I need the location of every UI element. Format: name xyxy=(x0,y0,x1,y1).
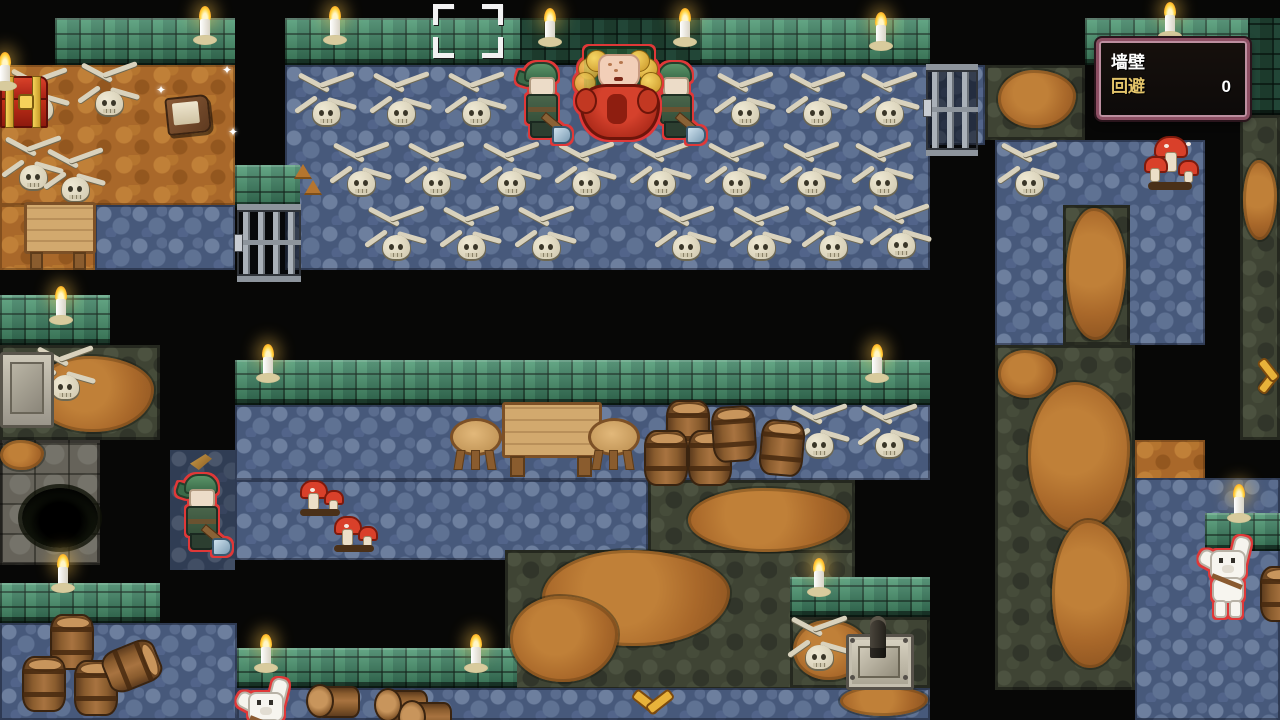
stool xyxy=(448,416,502,472)
gate-portcullis[interactable] xyxy=(237,204,301,282)
barrel-lying xyxy=(398,700,452,720)
skeleton-remains xyxy=(786,618,852,672)
floor-region-cobble[interactable] xyxy=(95,205,235,270)
candle xyxy=(48,286,74,330)
down-arrow-indicator xyxy=(632,690,674,716)
candle xyxy=(868,12,894,56)
wall-tile-region xyxy=(235,360,930,405)
skeleton-remains xyxy=(856,74,922,128)
candle xyxy=(463,634,489,678)
floor-region-dirt[interactable] xyxy=(1135,440,1205,480)
floor-region-cobble[interactable] xyxy=(235,480,648,560)
tooltip-value-evade: 0 xyxy=(1222,75,1235,99)
skeleton-remains xyxy=(850,144,916,198)
candle xyxy=(322,6,348,50)
right-arrow-indicator xyxy=(1253,365,1280,391)
sparkle-effect: ✦ xyxy=(228,126,242,140)
candle xyxy=(255,344,281,388)
skeleton-remains xyxy=(438,208,504,262)
barrel-lying xyxy=(306,684,360,718)
skeleton-remains xyxy=(42,150,108,204)
game-viewport: 墙壁 回避 0 ✦✦✦ xyxy=(0,0,1280,720)
rabbit-npc[interactable] xyxy=(1196,536,1256,616)
stool xyxy=(586,416,640,472)
candle xyxy=(864,344,890,388)
candle xyxy=(192,6,218,50)
skeleton-remains xyxy=(403,144,469,198)
skeleton-remains xyxy=(856,406,922,460)
skeleton-remains xyxy=(800,208,866,262)
gate-portcullis[interactable] xyxy=(926,64,978,156)
candle xyxy=(806,558,832,602)
skeleton-remains xyxy=(368,74,434,128)
sparkle-effect: ✦ xyxy=(156,84,170,98)
soldier-npc[interactable] xyxy=(176,472,230,556)
mushrooms xyxy=(332,514,376,552)
wall-tile-region xyxy=(1248,18,1280,115)
barrel xyxy=(1260,566,1280,622)
skeleton-remains xyxy=(293,74,359,128)
skeleton-remains xyxy=(868,206,934,260)
rabbit-npc[interactable] xyxy=(234,678,294,720)
skeleton-remains xyxy=(553,144,619,198)
tooltip-label-evade: 回避 xyxy=(1111,75,1145,99)
skeleton-remains xyxy=(778,144,844,198)
barrel-stack xyxy=(20,614,180,720)
candle xyxy=(672,8,698,52)
candle xyxy=(50,554,76,598)
candle xyxy=(1226,484,1252,528)
lever-device[interactable] xyxy=(844,616,916,688)
skeleton-remains xyxy=(478,144,544,198)
pit-hole[interactable] xyxy=(22,488,98,548)
wall-tile-region xyxy=(700,18,930,65)
skeleton-remains xyxy=(628,144,694,198)
candle xyxy=(537,8,563,52)
selection-brackets xyxy=(433,4,503,58)
tooltip-panel: 墙壁 回避 0 xyxy=(1096,38,1250,120)
skeleton-remains xyxy=(653,208,719,262)
skeleton-remains xyxy=(328,144,394,198)
candle xyxy=(0,52,18,96)
skeleton-remains xyxy=(728,208,794,262)
mushrooms xyxy=(1144,136,1198,190)
skeleton-remains xyxy=(703,144,769,198)
tooltip-label-wall: 墙壁 xyxy=(1111,51,1145,75)
tooltip-row-evade: 回避 0 xyxy=(1111,75,1235,99)
tooltip-row-wall: 墙壁 xyxy=(1111,51,1235,75)
skeleton-remains xyxy=(363,208,429,262)
skeleton-remains xyxy=(784,74,850,128)
barrel-pair xyxy=(712,406,812,486)
wall-tile-region xyxy=(235,165,300,208)
skeleton-remains xyxy=(76,64,142,118)
sparkle-effect: ✦ xyxy=(222,64,236,78)
candle xyxy=(253,634,279,678)
queen-npc[interactable] xyxy=(570,46,664,138)
metal-door[interactable] xyxy=(0,352,54,428)
skeleton-remains xyxy=(443,74,509,128)
wooden-table xyxy=(24,202,96,268)
skeleton-remains xyxy=(712,74,778,128)
skeleton-remains xyxy=(996,144,1062,198)
skeleton-remains xyxy=(513,208,579,262)
mushrooms xyxy=(298,478,342,516)
soldier-npc[interactable] xyxy=(516,60,570,144)
